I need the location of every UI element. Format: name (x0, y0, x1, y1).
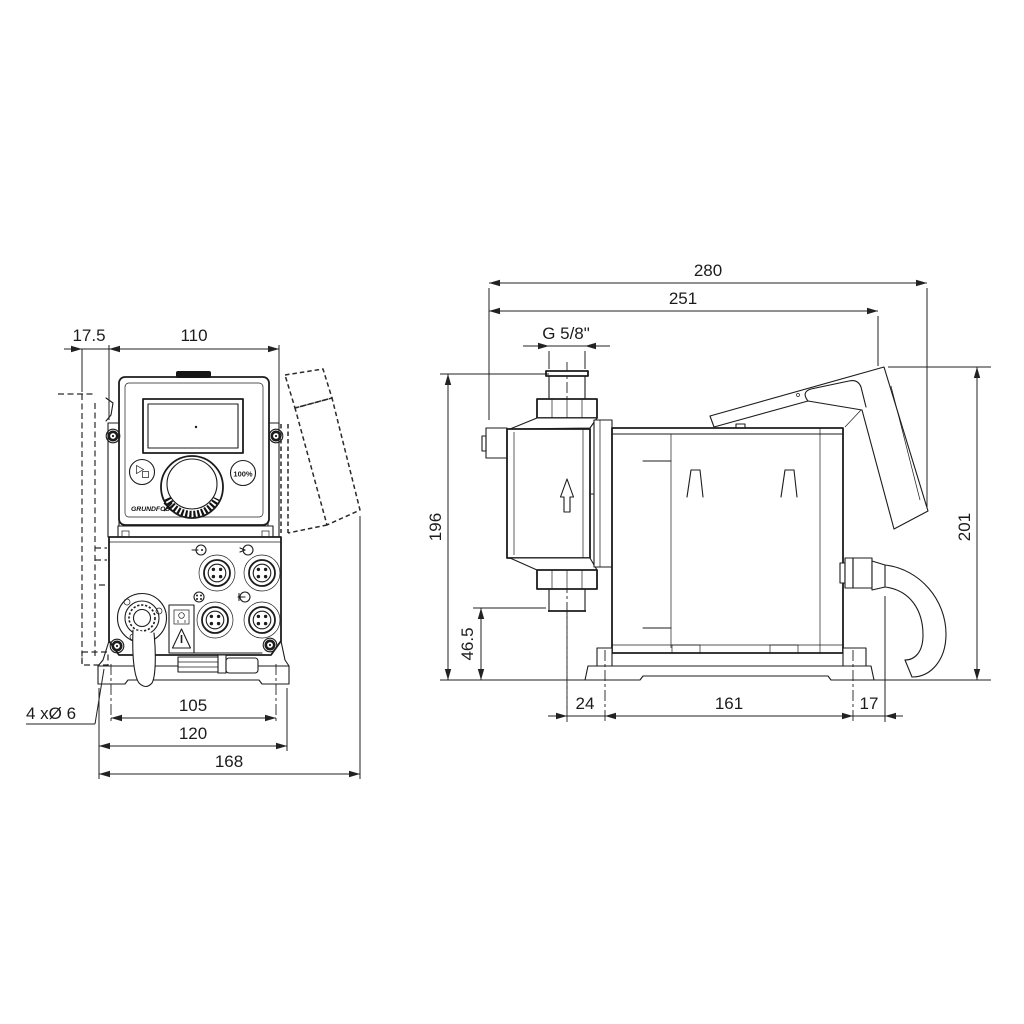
dim-label: 105 (179, 696, 207, 715)
deaeration-valve[interactable] (482, 428, 507, 458)
display (143, 399, 243, 453)
dim-label: 46.5 (458, 627, 477, 660)
head-flange (594, 420, 612, 567)
dim-label: 17.5 (72, 326, 105, 345)
electronics-label (169, 605, 194, 653)
dim-label: 280 (694, 261, 722, 280)
start-stop-button[interactable] (130, 460, 155, 485)
screw (106, 429, 120, 443)
brand-logo-text: GRUNDFOS (131, 506, 170, 513)
side-view: 280 251 G 5/8" 196 (426, 261, 991, 722)
callout-label: 4 xØ 6 (26, 704, 76, 723)
control-panel: 100% GRUNDFOS (119, 371, 269, 525)
dosing-head (482, 371, 612, 611)
dim-label: 24 (576, 694, 595, 713)
dim-wall-clearance: 17.5 (64, 326, 109, 392)
front-view: 100% GRUNDFOS (26, 326, 360, 779)
dim-connection-height: 46.5 (458, 608, 546, 680)
dim-label: 201 (955, 513, 974, 541)
pump-body-side (612, 424, 843, 653)
dim-label: 251 (669, 289, 697, 308)
dim-label: 161 (715, 694, 743, 713)
power-cable-front (133, 630, 156, 687)
hood-open-hidden (281, 369, 360, 533)
din-rail-clip (178, 653, 262, 673)
dim-connection-thread: G 5/8" (523, 324, 610, 369)
full-capacity-button[interactable]: 100% (231, 461, 256, 486)
hinge-strip (118, 526, 273, 537)
callout-mount-holes: 4 xØ 6 (26, 669, 104, 724)
wall-plate-hidden (58, 394, 113, 665)
screw (110, 639, 124, 653)
pump-dimensional-drawing: 100% GRUNDFOS (0, 0, 1024, 1024)
screw (263, 638, 277, 652)
dim-label: 168 (215, 752, 243, 771)
dim-label: 17 (860, 694, 879, 713)
panel-top-tab (176, 371, 211, 378)
pump-head-body (507, 429, 590, 558)
dim-label: 120 (179, 724, 207, 743)
full-capacity-label: 100% (233, 470, 253, 479)
dim-label: 196 (426, 513, 445, 541)
dim-label: G 5/8" (542, 324, 590, 343)
dim-label: 110 (180, 326, 207, 345)
dim-foot-pitch: 161 (605, 650, 853, 722)
